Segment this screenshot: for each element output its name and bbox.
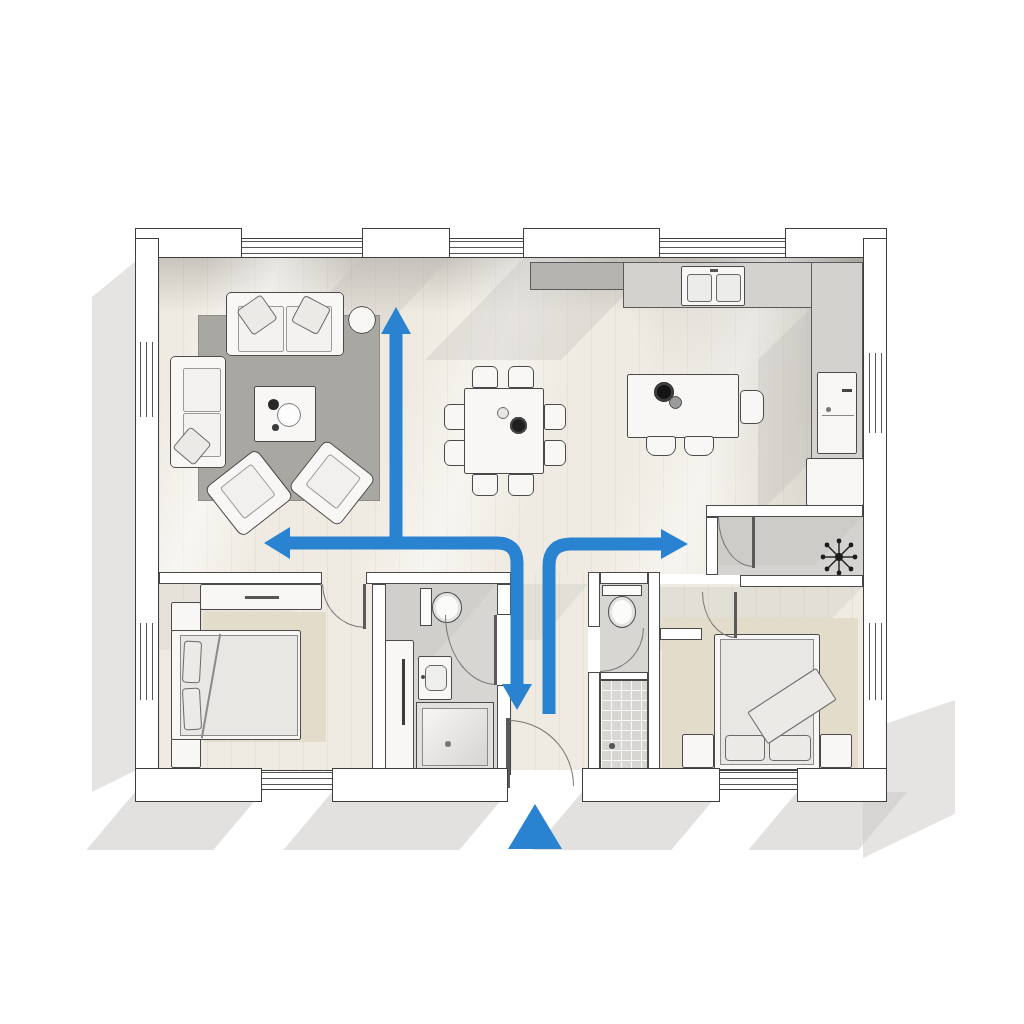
flow-left-down-path — [282, 543, 517, 688]
arrowhead-right — [661, 529, 688, 559]
flow-entry-right-path — [549, 544, 661, 714]
entrance-triangle — [508, 804, 562, 849]
arrowhead-left — [264, 527, 290, 559]
arrowhead-up — [381, 307, 411, 334]
floor-plan-canvas — [0, 0, 1024, 1024]
arrowhead-down — [502, 684, 532, 710]
flow-arrows — [0, 0, 1024, 1024]
